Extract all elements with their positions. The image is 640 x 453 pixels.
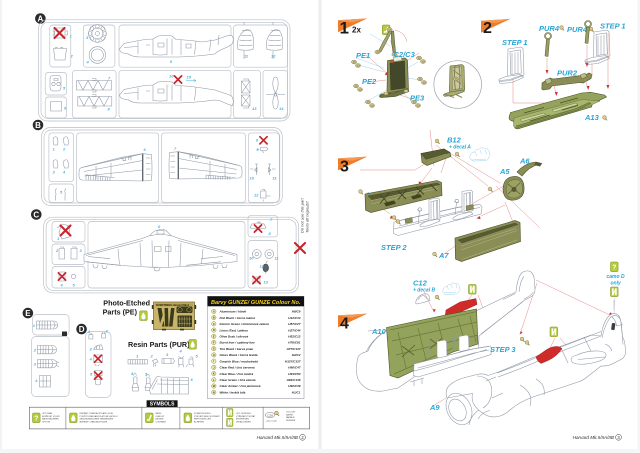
- svg-text:CUT OFF/DRILL: CUT OFF/DRILL: [236, 413, 252, 415]
- svg-text:Photo-Etched: Photo-Etched: [103, 299, 150, 308]
- svg-text:2x: 2x: [352, 26, 361, 35]
- svg-text:DETAILLIEREN: DETAILLIEREN: [236, 420, 251, 423]
- svg-text:H76/C61: H76/C61: [288, 341, 300, 345]
- svg-text:COLOUR: COLOUR: [286, 412, 295, 414]
- svg-text:N: N: [213, 390, 215, 394]
- svg-text:M: M: [213, 384, 215, 388]
- svg-text:C: C: [33, 210, 39, 219]
- svg-text:ADHESIF CYANOACRYLATE: ADHESIF CYANOACRYLATE: [80, 420, 108, 423]
- svg-text:ENTFERNEN: ENTFERNEN: [236, 419, 249, 421]
- svg-text:SEKUNDENKLEBER VERWENDEN: SEKUNDENKLEBER VERWENDEN: [80, 419, 114, 421]
- svg-text:POUŽÍT KYANOAKRYLÁTOVÉ LEPIDLO: POUŽÍT KYANOAKRYLÁTOVÉ LEPIDLO: [80, 415, 119, 418]
- svg-text:Flat Black / černá matná: Flat Black / černá matná: [220, 316, 256, 320]
- svg-text:3: 3: [340, 159, 349, 176]
- svg-text:Gloss Black / černá lesklá: Gloss Black / černá lesklá: [220, 353, 258, 357]
- svg-text:STEP 1: STEP 1: [502, 38, 528, 47]
- svg-text:K: K: [213, 372, 215, 376]
- svg-text:White / lesklá bílá: White / lesklá bílá: [220, 391, 246, 395]
- svg-text:INSTANT CYANOACRYLATE GLUE: INSTANT CYANOACRYLATE GLUE: [80, 412, 114, 415]
- svg-text:4: 4: [340, 316, 349, 333]
- svg-text:PUR4: PUR4: [567, 25, 588, 34]
- svg-text:Clear Red / čirá červená: Clear Red / čirá červená: [220, 366, 255, 370]
- svg-text:NATŘÍT: NATŘÍT: [286, 413, 294, 416]
- svg-text:C12: C12: [413, 279, 428, 288]
- svg-text:12: 12: [271, 54, 276, 59]
- svg-text:FARBEN: FARBEN: [286, 416, 295, 419]
- svg-text:E: E: [213, 334, 215, 338]
- svg-text:10: 10: [169, 74, 174, 79]
- svg-text:Barvy GUNZE/ GUNZE Colour No.: Barvy GUNZE/ GUNZE Colour No.: [211, 300, 301, 306]
- svg-text:STEP 1: STEP 1: [600, 22, 626, 31]
- svg-text:COURBER: COURBER: [156, 421, 167, 423]
- svg-text:BIEGEN: BIEGEN: [156, 419, 164, 421]
- svg-text:ACHEVER: ACHEVER: [194, 420, 205, 423]
- svg-text:B: B: [213, 316, 215, 320]
- svg-text:H90/C47: H90/C47: [288, 366, 300, 370]
- svg-text:NACH BELIEBEN: NACH BELIEBEN: [42, 418, 59, 421]
- svg-text:VYROBIT NENÍ SOUČÁSTÍ: VYROBIT NENÍ SOUČÁSTÍ: [194, 415, 220, 418]
- svg-text:colour code: colour code: [266, 420, 278, 423]
- svg-text:PEINDRE: PEINDRE: [286, 420, 296, 422]
- svg-text:A5: A5: [499, 167, 510, 176]
- svg-text:SCRATCH BUILD: SCRATCH BUILD: [194, 412, 211, 415]
- svg-text:10: 10: [249, 256, 254, 261]
- svg-text:Tire Black / barva pneu: Tire Black / barva pneu: [220, 347, 254, 351]
- svg-text:Interior Green / interiérová z: Interior Green / interiérová zelená: [220, 322, 269, 326]
- svg-text:2: 2: [483, 20, 492, 37]
- svg-text:12: 12: [254, 193, 259, 198]
- svg-text:OPTION: OPTION: [42, 421, 50, 423]
- svg-text:1: 1: [340, 19, 349, 38]
- svg-text:B12: B12: [447, 136, 462, 145]
- svg-text:13: 13: [252, 106, 257, 111]
- svg-text:A13: A13: [584, 113, 600, 122]
- svg-text:A10: A10: [371, 327, 387, 336]
- svg-text:A9: A9: [429, 403, 440, 412]
- svg-text:FERTIGSTELLEN: FERTIGSTELLEN: [194, 419, 211, 421]
- svg-text:H93/C50: H93/C50: [288, 372, 300, 376]
- svg-text:+ decal A: + decal A: [449, 145, 471, 151]
- svg-text:14: 14: [279, 106, 284, 111]
- svg-text:H12/C33: H12/C33: [288, 316, 300, 320]
- svg-text:H: H: [213, 353, 215, 357]
- svg-text:VYŘEZAT/VYVRTAT: VYŘEZAT/VYVRTAT: [236, 415, 256, 418]
- svg-text:15: 15: [187, 75, 192, 80]
- svg-text:PUR4: PUR4: [539, 24, 560, 33]
- svg-text:13: 13: [264, 280, 269, 285]
- svg-text:H27/C44: H27/C44: [288, 328, 300, 332]
- svg-text:H337/C337: H337/C337: [285, 359, 301, 363]
- svg-text:OVERTREES Harvard Mk.II: OVERTREES Harvard Mk.II: [156, 303, 189, 307]
- svg-text:A: A: [38, 14, 44, 23]
- svg-text:Parts (PE): Parts (PE): [103, 308, 138, 317]
- svg-text:B: B: [35, 121, 41, 130]
- svg-text:PE1: PE1: [356, 51, 370, 60]
- svg-text:MOŽNOST VOLBY: MOŽNOST VOLBY: [42, 415, 60, 418]
- svg-text:Burnt Iron / spálený kov: Burnt Iron / spálený kov: [220, 341, 256, 345]
- svg-text:Tento díl nepoužít: Tento díl nepoužít: [305, 200, 310, 233]
- svg-text:G: G: [213, 347, 215, 351]
- svg-text:A7: A7: [438, 251, 449, 260]
- svg-text:H57/C27: H57/C27: [288, 322, 300, 326]
- svg-text:STEP 2: STEP 2: [381, 243, 407, 252]
- svg-text:H52/C12: H52/C12: [288, 335, 300, 339]
- svg-text:H77/C137: H77/C137: [287, 347, 301, 351]
- svg-text:Linen (Tan) / plátno: Linen (Tan) / plátno: [220, 328, 249, 332]
- svg-text:Aluminium / hliník: Aluminium / hliník: [219, 310, 247, 314]
- svg-text:H2/C2: H2/C2: [292, 353, 301, 357]
- svg-text:12: 12: [260, 264, 265, 269]
- svg-text:H92/C49: H92/C49: [288, 384, 300, 388]
- svg-text:C: C: [213, 322, 215, 326]
- svg-text:Harvard Mk.II/IIA/IIB: Harvard Mk.II/IIA/IIB: [257, 435, 298, 440]
- svg-text:camo D: camo D: [607, 274, 625, 280]
- svg-text:OPTIONAL: OPTIONAL: [42, 412, 53, 415]
- svg-text:H8/C8: H8/C8: [292, 310, 301, 314]
- svg-text:Harvard Mk.II/IIA/IIB: Harvard Mk.II/IIA/IIB: [573, 435, 614, 440]
- svg-text:Clear Blue / čirá modrá: Clear Blue / čirá modrá: [220, 372, 254, 376]
- svg-text:Clear Green / čirá zelená: Clear Green / čirá zelená: [220, 378, 256, 382]
- svg-text:Greyish Blue / modrošedá: Greyish Blue / modrošedá: [220, 359, 259, 363]
- svg-text:STEP 3: STEP 3: [490, 345, 516, 354]
- svg-text:C2/C3: C2/C3: [394, 50, 416, 59]
- svg-text:PE2: PE2: [362, 77, 377, 86]
- svg-text:Clear Amber / čirá jantarová: Clear Amber / čirá jantarová: [220, 384, 261, 388]
- svg-text:BEND: BEND: [156, 413, 162, 415]
- svg-text:SYMBOLS: SYMBOLS: [150, 402, 175, 408]
- svg-text:D: D: [213, 328, 215, 332]
- svg-text:D: D: [79, 325, 85, 334]
- svg-text:H94/C138: H94/C138: [287, 378, 301, 382]
- svg-text:10: 10: [250, 176, 255, 181]
- svg-text:only: only: [611, 280, 621, 286]
- svg-text:PE3: PE3: [410, 94, 425, 103]
- svg-text:Olive Drab / olivová: Olive Drab / olivová: [220, 335, 249, 339]
- svg-text:C28: C28: [267, 413, 273, 417]
- svg-text:H1/C1: H1/C1: [292, 391, 301, 395]
- svg-text:E: E: [25, 309, 31, 318]
- svg-text:OHNOUT: OHNOUT: [156, 416, 166, 418]
- svg-text:A: A: [213, 309, 215, 313]
